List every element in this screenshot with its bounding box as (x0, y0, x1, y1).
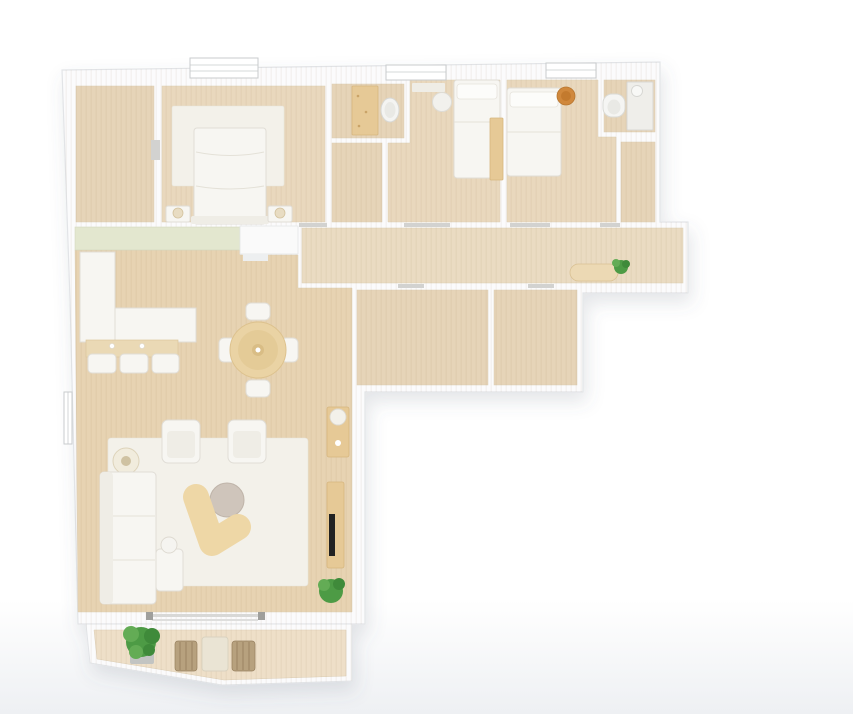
outdoor-chair-left (175, 641, 197, 671)
storage-door-threshold (151, 140, 160, 160)
bathroom2-door-threshold (600, 223, 620, 227)
coffee-table-round (210, 483, 244, 517)
dining-chair-south (246, 380, 270, 397)
nightstand-left (166, 206, 190, 222)
bedroom2-door-threshold (404, 223, 450, 227)
bedroom3-door-threshold (510, 223, 550, 227)
master-bedroom-furniture (166, 106, 292, 224)
entry-step (243, 254, 268, 261)
round-dining-table (230, 322, 286, 378)
bar-stool-3 (152, 354, 179, 373)
small-side-table (161, 537, 177, 553)
orange-round-chair (557, 87, 575, 105)
wood-vanity (352, 86, 378, 135)
counter-knob (110, 344, 115, 349)
tv (329, 514, 335, 556)
outdoor-table (202, 637, 228, 671)
wardrobe (490, 118, 503, 180)
washbasin (381, 98, 399, 122)
floor-plan-svg (0, 0, 853, 714)
wall-shelf (412, 83, 445, 92)
bathroom3-door-threshold (398, 284, 424, 288)
bar-stool-2 (120, 354, 148, 373)
toilet (603, 94, 625, 117)
living-room-side-window (64, 392, 72, 444)
counter-knob (140, 344, 145, 349)
armchair-left (162, 420, 200, 463)
table-lamp-icon (275, 208, 285, 218)
tv-console (327, 482, 344, 568)
desk (327, 407, 349, 457)
armchair-right (228, 420, 266, 463)
entry-door-block (240, 226, 298, 254)
master-door-threshold (299, 223, 327, 227)
single-bed (507, 88, 561, 176)
nightstand-right (268, 206, 292, 222)
bedroom3-window (546, 63, 596, 78)
dining-chair-north (246, 303, 270, 320)
entry-closet-green (75, 227, 240, 250)
small-washbasin (632, 86, 643, 97)
double-bed (191, 128, 269, 224)
bar-stool-1 (88, 354, 116, 373)
bench (570, 264, 618, 281)
master-bedroom-window (190, 58, 258, 78)
table-lamp-icon (173, 208, 183, 218)
floor-lamp (113, 448, 139, 474)
bedroom2-window (386, 65, 446, 80)
bathroom4-door-threshold (528, 284, 554, 288)
floor-plan-image (0, 0, 853, 714)
desk-chair (330, 409, 346, 425)
outdoor-chair-right (232, 641, 255, 671)
round-stool (433, 93, 452, 112)
